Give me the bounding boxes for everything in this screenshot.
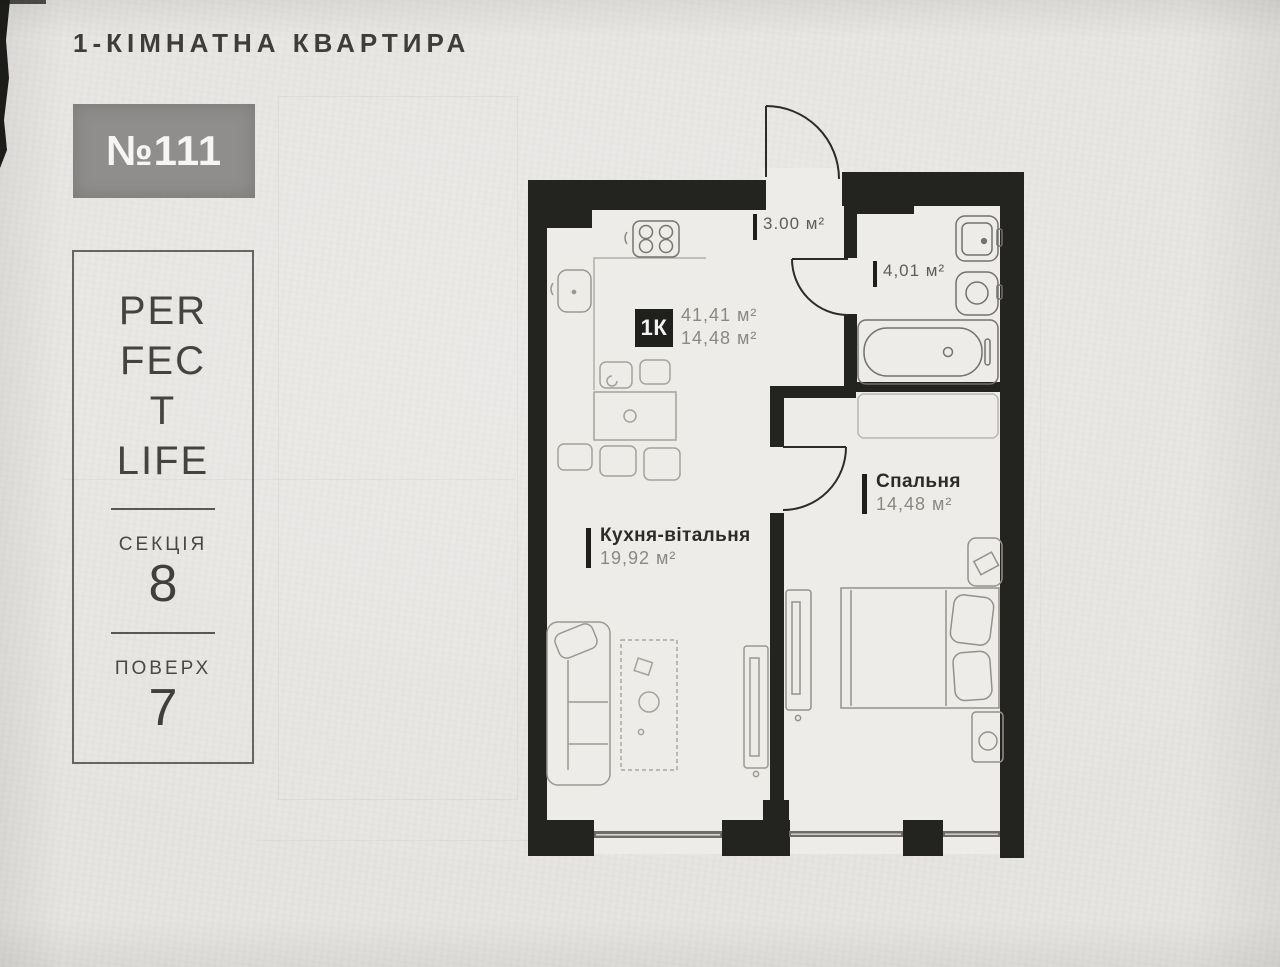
- wall-bath-step: [852, 206, 914, 214]
- kitchen-label-tick: [586, 528, 591, 568]
- bathroom-area-label: 4,01 м²: [883, 261, 945, 281]
- living-area-label: 14,48 м²: [681, 328, 757, 349]
- wall-bottom-middle: [722, 820, 790, 856]
- total-area-label: 41,41 м²: [681, 305, 757, 326]
- window-bedroom-left-line: [791, 834, 901, 835]
- bedroom-area-label: 14,48 м²: [876, 494, 952, 515]
- wall-bottom-left: [528, 820, 594, 856]
- unit-type-text: 1К: [641, 315, 668, 341]
- wall-interior-above-door: [770, 398, 784, 447]
- wall-hall-bath-lower: [844, 314, 857, 390]
- bedroom-label-tick: [862, 474, 867, 514]
- floor-plan: [0, 0, 1280, 967]
- unit-type-badge: 1К: [635, 309, 673, 347]
- hallway-label-tick: [753, 214, 757, 240]
- wall-junction: [770, 386, 856, 398]
- wall-window-mullion: [903, 820, 943, 856]
- window-living-line: [596, 834, 720, 836]
- hallway-area-label: 3.00 м²: [763, 214, 825, 234]
- wall-top-right: [842, 172, 1024, 206]
- wall-left: [528, 180, 547, 855]
- bathroom-label-tick: [873, 261, 877, 287]
- window-bedroom-right-line: [945, 834, 998, 835]
- kitchen-living-name-label: Кухня-вітальня: [600, 525, 751, 547]
- wall-interior-below-door: [770, 513, 784, 803]
- kitchen-living-area-label: 19,92 м²: [600, 548, 676, 569]
- wall-hall-bath-upper: [844, 206, 857, 258]
- bedroom-name-label: Спальня: [876, 471, 961, 493]
